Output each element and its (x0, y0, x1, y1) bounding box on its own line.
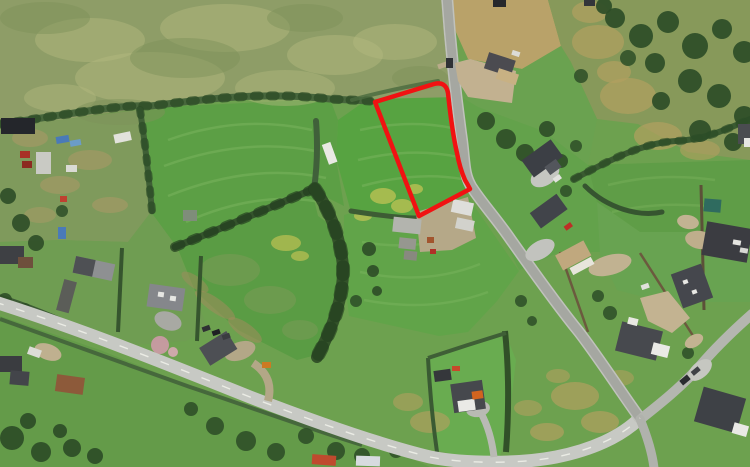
tree (560, 185, 572, 197)
farm-shed-mid (398, 237, 416, 250)
tree (707, 84, 731, 108)
scrub-tan-s (546, 369, 570, 383)
greenhouse (183, 210, 197, 221)
tree (63, 439, 81, 457)
shed-gray (36, 152, 51, 174)
farm-shed-large (392, 217, 421, 235)
tree (184, 402, 198, 416)
tree (298, 428, 314, 444)
scrub-mid (200, 254, 260, 286)
car-red (452, 366, 460, 371)
scrub-tan (600, 78, 656, 114)
teal-shed (703, 198, 721, 212)
pink-flowering-tree (151, 336, 169, 354)
scrub-tan-s (393, 393, 423, 411)
tree (87, 448, 103, 464)
tree (362, 242, 376, 256)
tree (350, 295, 362, 307)
farm-rusty-item (427, 237, 434, 243)
tree (620, 50, 636, 66)
car (584, 0, 595, 6)
smallholding-tan (40, 176, 80, 194)
tree (53, 424, 67, 438)
house-roof (9, 370, 29, 386)
tree (527, 316, 537, 326)
scrub-tan-s (530, 423, 564, 441)
hedge-vertical-mid (314, 121, 317, 189)
tree (0, 426, 24, 450)
scrub-tan-s (581, 411, 619, 433)
tree (657, 11, 679, 33)
tree (31, 442, 51, 462)
tree (682, 347, 694, 359)
house-roof-brown (18, 257, 33, 268)
tree (592, 290, 604, 302)
white-wall (457, 399, 475, 412)
tree (56, 205, 68, 217)
scrub-tan-s (514, 400, 542, 416)
pink-flowering-tree (168, 347, 178, 357)
dormer (170, 296, 177, 302)
tree (603, 306, 617, 320)
car-red (22, 161, 32, 168)
tree (496, 129, 516, 149)
orange-feature (471, 390, 483, 399)
garage (433, 369, 451, 382)
orange-vehicle (262, 362, 271, 368)
car-red (20, 151, 30, 158)
roof-red-bottom-edge (312, 454, 337, 466)
aerial-photo (0, 0, 750, 467)
dandelion-patch (370, 188, 396, 204)
blue-item (58, 227, 66, 239)
tree (206, 417, 224, 435)
tree (629, 24, 653, 48)
farm-shed-small (404, 250, 418, 260)
tree (652, 92, 670, 110)
tree (689, 120, 711, 142)
tree (574, 69, 588, 83)
scrub-tan (572, 25, 624, 59)
red-item (60, 196, 67, 202)
olive-shade (267, 4, 343, 32)
scrub-mid (282, 320, 318, 340)
car (493, 0, 506, 7)
tree (267, 443, 285, 461)
tree (539, 121, 555, 137)
dandelion-patch (391, 199, 413, 213)
scrub-mid (244, 286, 296, 314)
farm-red-item (430, 249, 436, 254)
solar-panel-array (1, 118, 35, 134)
tree (236, 431, 256, 451)
dandelion-patch (271, 235, 301, 251)
scrub-tan-s (551, 382, 599, 410)
olive-shade (0, 2, 90, 34)
tree (0, 188, 16, 204)
tree (515, 295, 527, 307)
olive-patch (353, 24, 437, 60)
car (446, 58, 453, 68)
tree (477, 112, 495, 130)
tree (28, 235, 44, 251)
scrub-tan-s (410, 411, 450, 433)
olive-shade (130, 38, 240, 78)
tree (12, 214, 30, 232)
tree (645, 53, 665, 73)
tree (682, 33, 708, 59)
white-wall (744, 138, 750, 147)
dormer (158, 292, 165, 298)
tree (372, 286, 382, 296)
tree (678, 69, 702, 93)
smallholding-tan (92, 197, 128, 213)
white-shed (66, 165, 77, 172)
tree (367, 265, 379, 277)
aerial-canvas (0, 0, 750, 467)
roof-white-bottom-edge (356, 456, 380, 467)
tree (570, 140, 582, 152)
garden-hedge-b10-right (505, 331, 508, 452)
dandelion-patch (291, 251, 309, 261)
tree (20, 413, 36, 429)
tree (712, 19, 732, 39)
house-roof (0, 356, 22, 372)
